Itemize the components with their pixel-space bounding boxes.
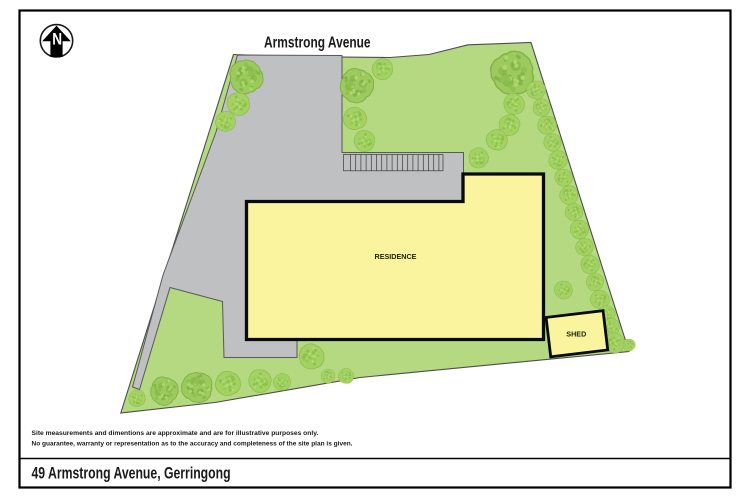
- svg-text:RESIDENCE: RESIDENCE: [375, 252, 417, 261]
- svg-text:No guarantee, warranty or repr: No guarantee, warranty or representation…: [32, 441, 353, 448]
- svg-text:49 Armstrong Avenue, Gerringon: 49 Armstrong Avenue, Gerringong: [32, 465, 231, 483]
- svg-text:Armstrong Avenue: Armstrong Avenue: [264, 33, 371, 51]
- svg-text:Site measurements and dimentio: Site measurements and dimentions are app…: [32, 430, 319, 437]
- svg-text:SHED: SHED: [566, 329, 587, 338]
- svg-text:N: N: [52, 30, 62, 49]
